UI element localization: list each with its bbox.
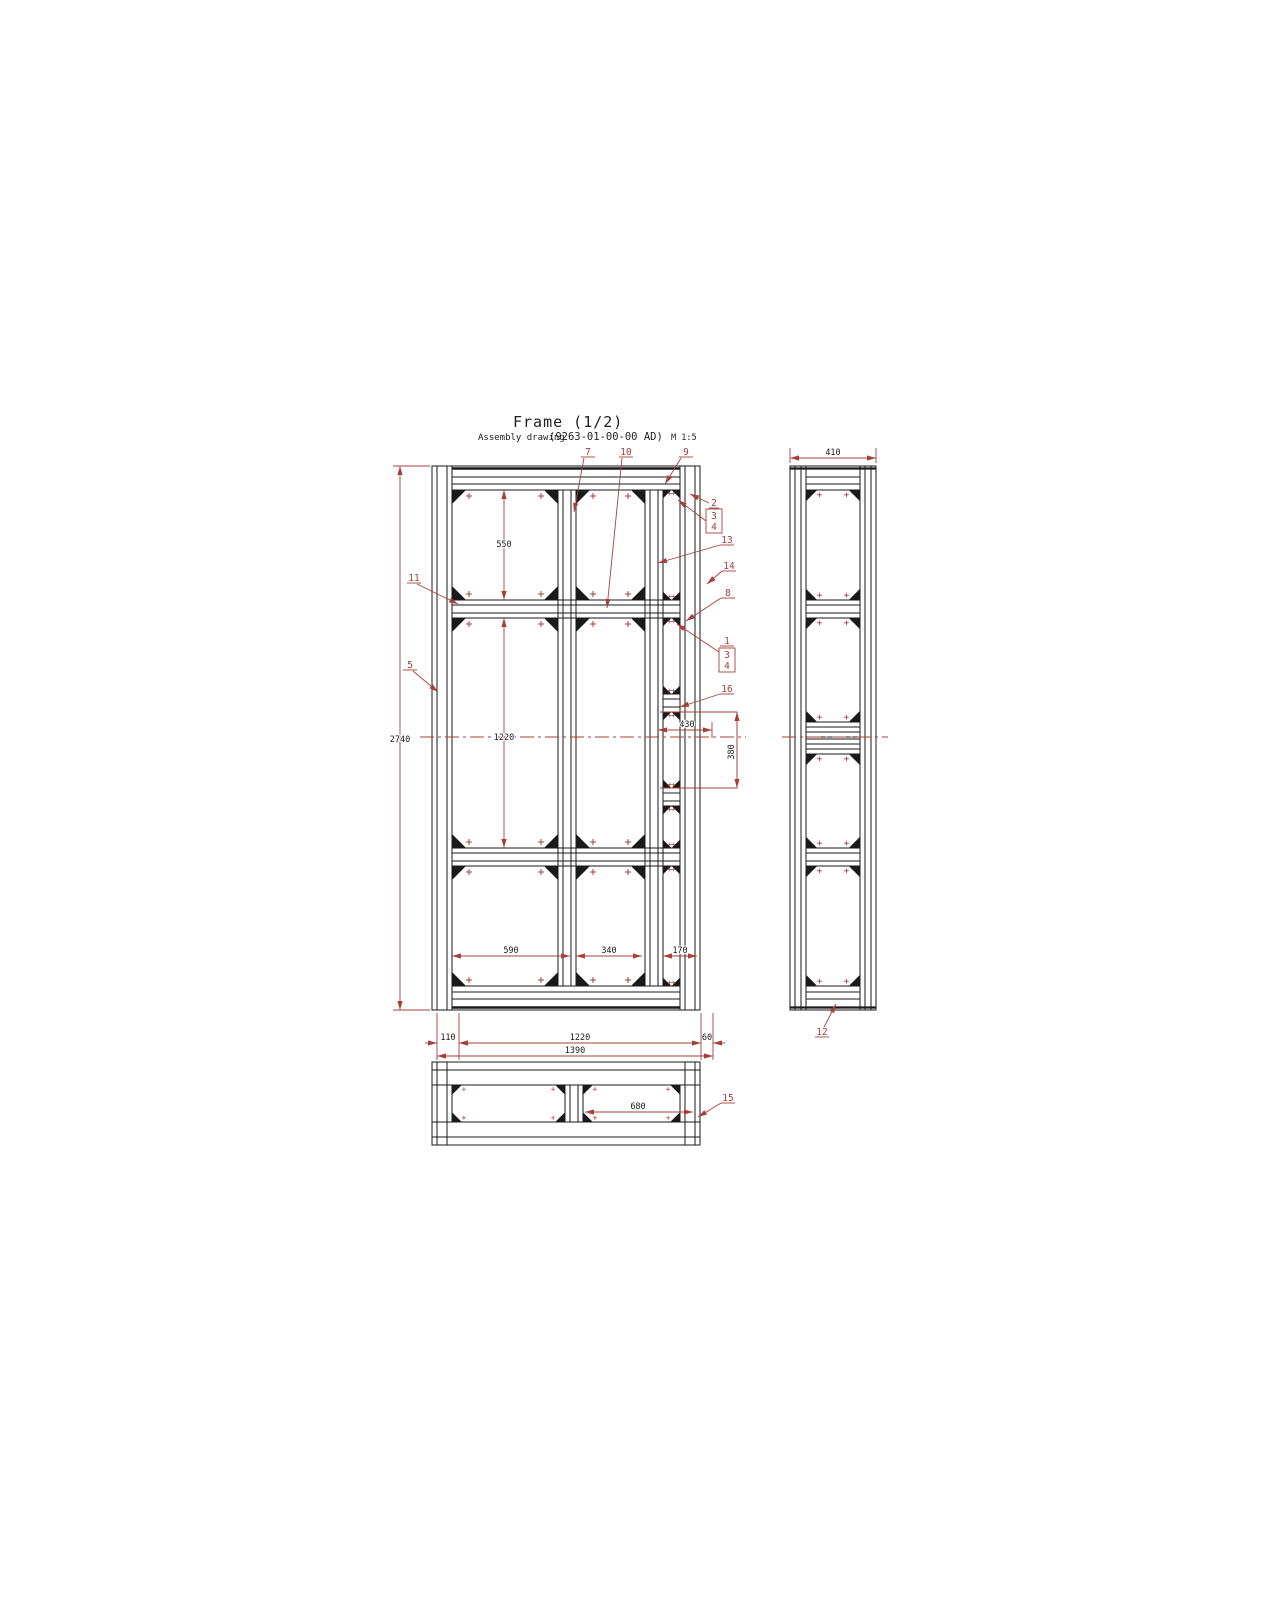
bottom-post: [565, 1085, 583, 1122]
side-rail-mid2: [806, 739, 860, 754]
drawing-page: Frame (1/2) Assembly drawing (9263-01-00…: [0, 0, 1280, 1600]
dim-inner-width: 1220: [570, 1033, 590, 1043]
side-structure: [790, 466, 876, 1010]
dim-offset-left: 110: [440, 1033, 455, 1043]
callout-16: 16: [721, 684, 733, 695]
svg-text:550: 550: [496, 540, 511, 550]
callout-5: 5: [407, 660, 413, 671]
left-rail: [432, 466, 452, 1010]
svg-text:2740: 2740: [390, 735, 410, 745]
bottom-structure: [432, 1062, 700, 1145]
callout-12: 12: [816, 1027, 827, 1038]
svg-text:380: 380: [727, 744, 737, 759]
dim-opening-height: 380: [727, 712, 737, 788]
front-structure: [432, 466, 700, 1010]
callout-9: 9: [683, 447, 689, 458]
callout-4a: 4: [711, 522, 717, 533]
dim-overall-height: 2740: [390, 466, 430, 1010]
bottom-callouts: 15: [698, 1093, 735, 1117]
side-rail-lower: [806, 848, 860, 866]
side-outline: [790, 466, 876, 1010]
callout-13: 13: [721, 535, 732, 546]
callout-7: 7: [585, 447, 591, 458]
callout-14: 14: [723, 561, 735, 572]
title-block: Frame (1/2) Assembly drawing (9263-01-00…: [478, 413, 697, 443]
drawing-number: (9263-01-00-00 AD): [549, 431, 663, 443]
drawing-title: Frame (1/2): [513, 413, 623, 431]
drawing-scale: M 1:5: [671, 433, 697, 443]
svg-text:590: 590: [503, 946, 518, 956]
callout-11: 11: [408, 573, 420, 584]
svg-text:1220: 1220: [494, 733, 514, 743]
dim-bay-width-right: 170: [663, 946, 697, 956]
right-rail: [680, 466, 700, 1010]
svg-text:430: 430: [679, 720, 694, 730]
dim-bay-width-left: 590: [452, 946, 570, 956]
dim-bay-width-middle: 340: [576, 946, 642, 956]
bottom-view: 680 15: [432, 1062, 735, 1145]
callout-8: 8: [725, 588, 731, 599]
svg-text:340: 340: [601, 946, 616, 956]
side-annotations: 410 12: [782, 448, 888, 1038]
front-callouts: 7 10 9 2 3 4 13 14: [403, 447, 736, 707]
front-gussets: [452, 490, 680, 986]
side-rail-upper: [806, 600, 860, 618]
cross-rail-upper: [452, 600, 680, 618]
cross-rail-lower: [452, 848, 680, 866]
bottom-annotations: 680 15: [585, 1093, 735, 1117]
svg-text:680: 680: [630, 1102, 645, 1112]
dim-overall-depth: 410: [790, 448, 876, 463]
dim-bottom-chain: 110 1220 60 1390: [425, 1013, 725, 1060]
side-view: 410 12: [782, 448, 888, 1038]
dim-middle-bay-height: 1220: [494, 618, 514, 848]
callout-10: 10: [620, 447, 632, 458]
svg-text:170: 170: [672, 946, 687, 956]
short-rail-above-opening: [663, 694, 680, 712]
callout-4b: 4: [724, 661, 730, 672]
bottom-outline: [432, 1062, 700, 1145]
dim-offset-right: 60: [702, 1033, 712, 1043]
front-annotations: 2740 550 1220 430 380: [390, 447, 746, 1060]
dim-top-bay-height: 550: [496, 490, 511, 600]
post-middle: [558, 490, 576, 986]
drawing-canvas: Frame (1/2) Assembly drawing (9263-01-00…: [0, 0, 1280, 1600]
side-callouts: 12: [815, 1004, 836, 1038]
post-right: [645, 490, 663, 986]
dim-overall-width: 1390: [565, 1046, 585, 1056]
callout-2: 2: [711, 498, 717, 509]
bottom-gussets: [452, 1085, 680, 1122]
callout-15: 15: [722, 1093, 733, 1104]
short-rail-below-opening: [663, 788, 680, 806]
callout-3b: 3: [724, 650, 730, 661]
svg-text:410: 410: [825, 448, 840, 458]
dim-bottom-bay-width: 680: [585, 1102, 693, 1112]
callout-1: 1: [724, 636, 730, 647]
callout-3a: 3: [711, 511, 717, 522]
side-rail-mid1: [806, 722, 860, 737]
side-gussets: [806, 490, 860, 986]
opening-outline: [660, 712, 737, 788]
front-view: 2740 550 1220 430 380: [390, 447, 746, 1060]
